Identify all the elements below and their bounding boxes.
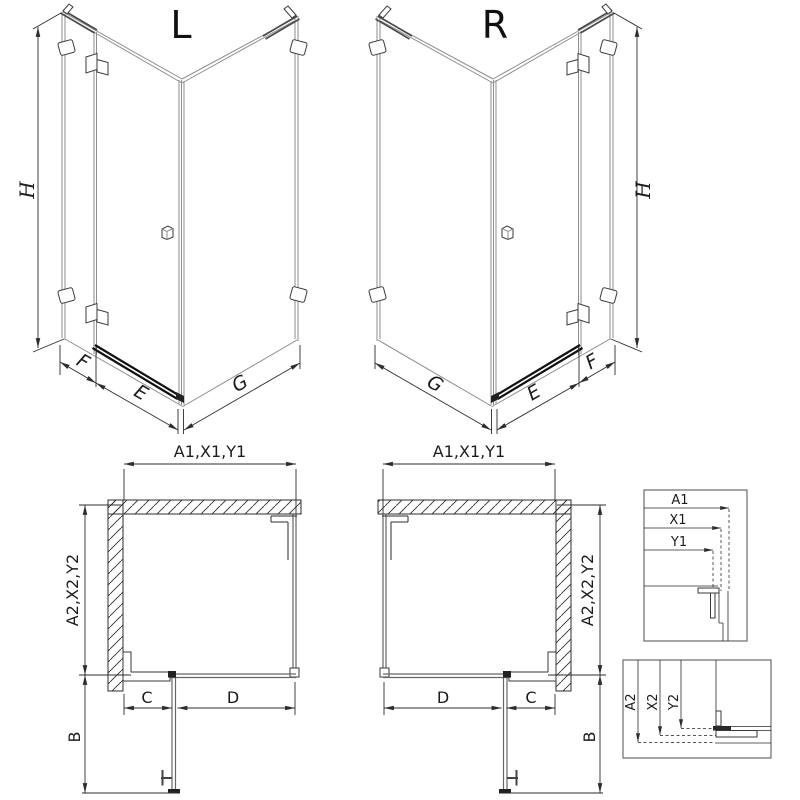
dim-label-C: C [141,688,152,707]
shower-enclosure-drawing: L H F E G R [0,0,800,800]
dim-label-height: H [631,181,655,200]
door-pivot-block [503,671,511,678]
detail-label-Y1: Y1 [670,535,687,550]
dim-label-swing: B [65,732,84,743]
detail-label-X1: X1 [669,513,686,528]
dim-label-swing: B [580,732,599,743]
dim-label-depth: A2,X2,Y2 [63,554,82,626]
profile-slot [716,711,721,726]
iso-left-title: L [170,3,191,47]
dim-label-height: H [15,181,39,200]
technical-drawing-page: L H F E G R [0,0,800,800]
wall-hatch-top [378,500,571,514]
dim-label-D: D [437,688,449,707]
dim-label-width: A1,X1,Y1 [433,442,505,461]
wall-hatch-right [556,500,571,691]
door-end-seal [380,668,389,677]
wall-hatch-top [108,500,301,514]
dim-label-depth: A2,X2,Y2 [578,554,597,626]
profile-bar [713,726,731,731]
dim-label-D: D [227,688,239,707]
door-pivot-block [168,671,176,678]
detail-label-Y2: Y2 [667,694,682,711]
iso-right-title: R [482,3,508,47]
wall-hatch-left [108,500,123,691]
door-end-seal [290,668,299,677]
profile-flange [698,588,719,593]
dim-label-C: C [525,688,536,707]
detail-label-A2: A2 [624,693,639,710]
dim-label-width: A1,X1,Y1 [174,442,246,461]
detail-label-X2: X2 [646,693,661,710]
profile-bar [711,593,716,618]
profile-long-bar [716,731,757,738]
detail-label-A1: A1 [671,493,688,508]
